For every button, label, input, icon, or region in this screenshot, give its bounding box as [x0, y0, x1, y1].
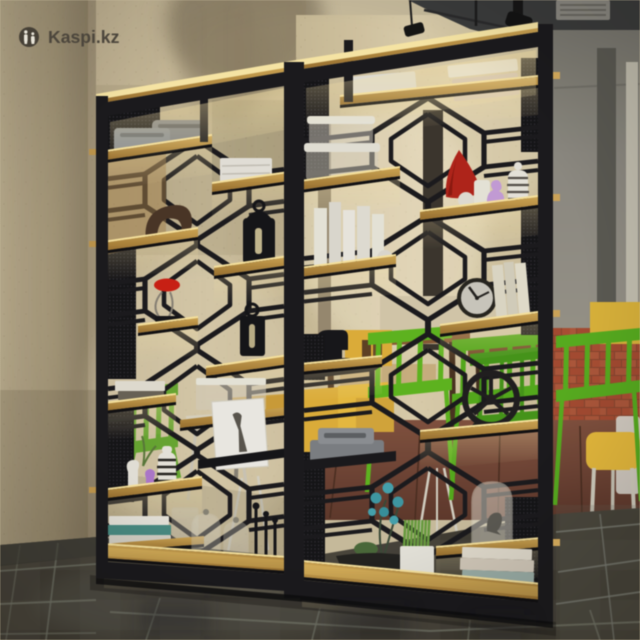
- svg-text:Kaspi.kz: Kaspi.kz: [48, 27, 120, 47]
